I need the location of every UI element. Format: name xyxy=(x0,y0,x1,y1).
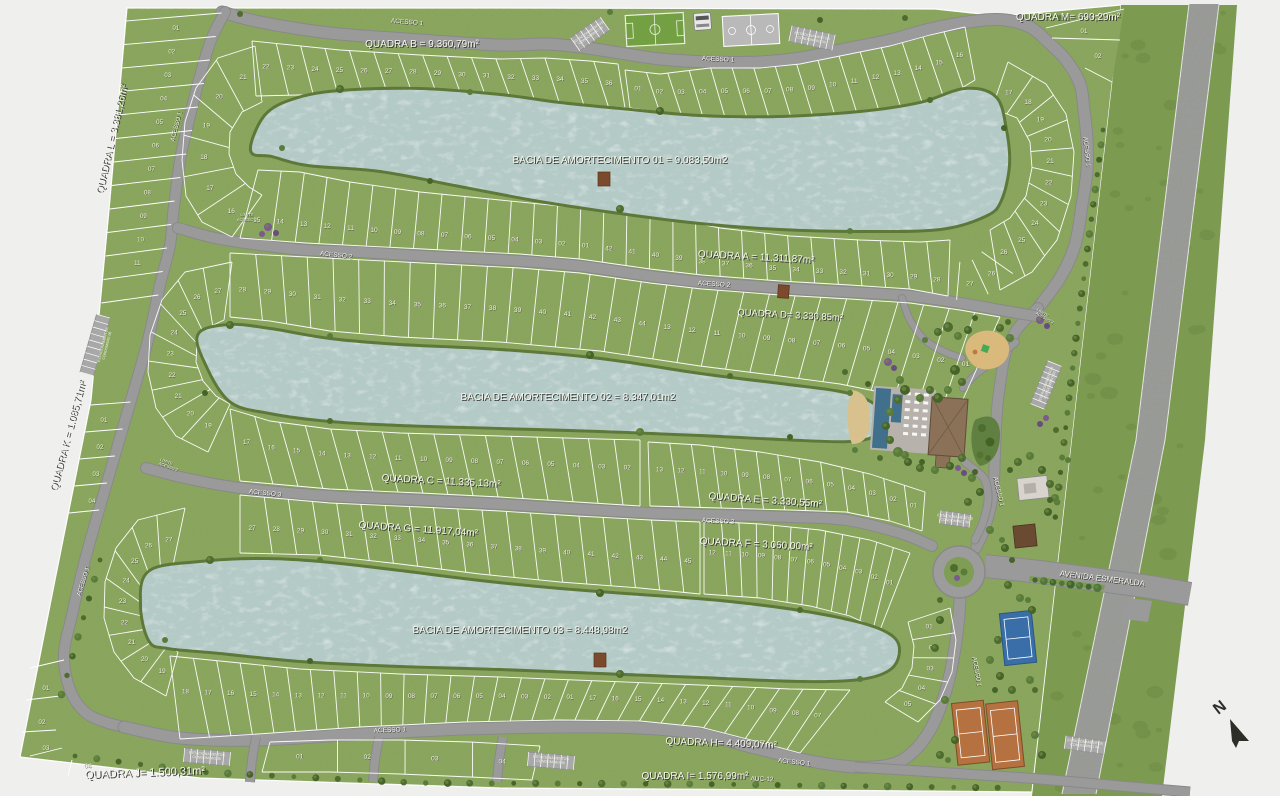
svg-text:26: 26 xyxy=(193,294,201,301)
svg-text:02: 02 xyxy=(890,496,898,503)
svg-text:19: 19 xyxy=(203,122,211,129)
svg-text:06: 06 xyxy=(838,342,846,349)
svg-text:13: 13 xyxy=(656,467,664,474)
svg-text:BACIA DE AMORTECIMENTO 01 = 9.: BACIA DE AMORTECIMENTO 01 = 9.083,50m2 xyxy=(513,155,728,166)
svg-text:22: 22 xyxy=(262,64,270,71)
svg-text:12: 12 xyxy=(872,74,880,81)
svg-text:16: 16 xyxy=(956,52,964,59)
svg-text:09: 09 xyxy=(808,85,816,92)
svg-text:33: 33 xyxy=(532,75,540,82)
svg-text:01: 01 xyxy=(910,502,918,509)
svg-text:08: 08 xyxy=(774,554,782,561)
svg-text:05: 05 xyxy=(863,345,871,352)
svg-text:17: 17 xyxy=(589,695,597,702)
svg-text:12: 12 xyxy=(369,454,377,461)
svg-text:05: 05 xyxy=(156,119,163,126)
svg-text:03: 03 xyxy=(869,490,877,497)
svg-text:24: 24 xyxy=(311,66,319,73)
svg-text:06: 06 xyxy=(453,693,461,700)
svg-text:10: 10 xyxy=(420,456,428,463)
svg-text:02: 02 xyxy=(624,464,632,471)
svg-text:21: 21 xyxy=(1047,158,1055,165)
svg-text:29: 29 xyxy=(910,274,918,281)
svg-text:01: 01 xyxy=(1081,28,1088,35)
svg-text:44: 44 xyxy=(639,321,647,328)
svg-text:26: 26 xyxy=(145,543,153,550)
svg-text:41: 41 xyxy=(629,249,637,256)
svg-text:09: 09 xyxy=(385,693,393,700)
svg-text:07: 07 xyxy=(764,88,772,95)
svg-text:29: 29 xyxy=(434,70,442,77)
svg-text:05: 05 xyxy=(827,482,835,489)
svg-text:21: 21 xyxy=(175,393,183,400)
svg-text:31: 31 xyxy=(483,73,491,80)
svg-text:03: 03 xyxy=(912,353,920,360)
svg-text:08: 08 xyxy=(792,710,800,717)
svg-text:42: 42 xyxy=(589,314,597,321)
svg-text:27: 27 xyxy=(214,288,222,295)
svg-text:01: 01 xyxy=(296,754,304,761)
svg-text:27: 27 xyxy=(385,68,393,75)
svg-text:30: 30 xyxy=(289,291,297,298)
svg-text:12: 12 xyxy=(317,692,325,699)
svg-text:09: 09 xyxy=(140,213,147,220)
svg-text:10: 10 xyxy=(363,693,371,700)
svg-text:34: 34 xyxy=(389,300,397,307)
svg-text:39: 39 xyxy=(514,307,522,314)
svg-text:38: 38 xyxy=(515,546,523,553)
svg-text:04: 04 xyxy=(848,485,856,492)
svg-text:01: 01 xyxy=(172,25,179,32)
svg-text:05: 05 xyxy=(721,88,729,95)
svg-text:32: 32 xyxy=(507,74,515,81)
svg-text:BACIA DE AMORTECIMENTO 03 = 8.: BACIA DE AMORTECIMENTO 03 = 8.448,98m2 xyxy=(413,625,628,636)
svg-text:11: 11 xyxy=(347,225,354,232)
svg-text:02: 02 xyxy=(1095,53,1102,60)
svg-text:32: 32 xyxy=(339,296,347,303)
svg-text:08: 08 xyxy=(763,474,771,481)
svg-text:04: 04 xyxy=(918,685,926,692)
svg-text:07: 07 xyxy=(148,166,155,173)
svg-text:31: 31 xyxy=(863,271,871,278)
svg-text:03: 03 xyxy=(927,666,935,673)
svg-text:40: 40 xyxy=(563,550,571,557)
svg-text:16: 16 xyxy=(228,208,236,215)
svg-text:06: 06 xyxy=(807,558,815,565)
svg-text:BACIA DE AMORTECIMENTO 02 = 8.: BACIA DE AMORTECIMENTO 02 = 8.347,01m2 xyxy=(461,392,676,403)
svg-text:06: 06 xyxy=(464,234,472,241)
svg-text:08: 08 xyxy=(417,230,425,237)
svg-text:11: 11 xyxy=(395,455,402,462)
svg-text:34: 34 xyxy=(418,537,426,544)
svg-text:42: 42 xyxy=(605,246,613,253)
svg-text:24: 24 xyxy=(123,577,131,584)
svg-text:01: 01 xyxy=(582,243,590,250)
svg-text:01: 01 xyxy=(566,694,574,701)
svg-text:05: 05 xyxy=(904,701,912,708)
svg-text:08: 08 xyxy=(408,693,416,700)
svg-text:11: 11 xyxy=(699,469,706,476)
svg-text:06: 06 xyxy=(522,460,530,467)
svg-text:07: 07 xyxy=(784,476,792,483)
svg-text:17: 17 xyxy=(1005,90,1013,97)
svg-text:11: 11 xyxy=(851,78,858,85)
svg-text:13: 13 xyxy=(680,698,688,705)
svg-text:15: 15 xyxy=(936,59,944,66)
svg-text:05: 05 xyxy=(488,235,496,242)
svg-text:02: 02 xyxy=(364,754,372,761)
svg-text:18: 18 xyxy=(182,689,190,696)
svg-text:29: 29 xyxy=(264,288,272,295)
svg-text:31: 31 xyxy=(314,294,322,301)
svg-text:04: 04 xyxy=(699,89,707,96)
svg-text:33: 33 xyxy=(364,298,372,305)
svg-text:22: 22 xyxy=(1045,180,1053,187)
svg-text:09: 09 xyxy=(742,472,750,479)
svg-text:15: 15 xyxy=(250,691,258,698)
svg-text:03: 03 xyxy=(598,463,606,470)
svg-text:19: 19 xyxy=(205,423,213,430)
svg-text:31: 31 xyxy=(345,531,353,538)
svg-text:04: 04 xyxy=(888,349,896,356)
svg-text:16: 16 xyxy=(227,690,235,697)
svg-text:12: 12 xyxy=(677,468,685,475)
svg-text:02: 02 xyxy=(97,444,104,451)
svg-text:41: 41 xyxy=(587,551,595,558)
svg-text:09: 09 xyxy=(394,229,402,236)
svg-text:02: 02 xyxy=(168,49,175,56)
svg-text:03: 03 xyxy=(43,745,50,752)
svg-text:01: 01 xyxy=(43,685,50,692)
svg-text:02: 02 xyxy=(558,241,566,248)
svg-text:10: 10 xyxy=(370,227,378,234)
svg-text:43: 43 xyxy=(636,554,644,561)
svg-text:11: 11 xyxy=(134,260,141,267)
svg-text:34: 34 xyxy=(556,76,564,83)
svg-text:30: 30 xyxy=(458,71,466,78)
svg-text:06: 06 xyxy=(743,88,751,95)
svg-text:35: 35 xyxy=(769,265,777,272)
svg-text:39: 39 xyxy=(539,548,547,555)
svg-text:26: 26 xyxy=(1000,249,1008,256)
svg-text:12: 12 xyxy=(688,327,696,334)
svg-text:01: 01 xyxy=(926,623,934,630)
svg-text:40: 40 xyxy=(652,252,660,259)
svg-text:01: 01 xyxy=(886,580,894,587)
svg-text:11: 11 xyxy=(713,330,720,337)
svg-text:08: 08 xyxy=(786,87,794,94)
svg-text:10: 10 xyxy=(747,705,755,712)
svg-text:06: 06 xyxy=(806,479,814,486)
svg-text:21: 21 xyxy=(128,639,136,646)
svg-text:10: 10 xyxy=(137,237,144,244)
svg-text:13: 13 xyxy=(295,692,303,699)
svg-text:04: 04 xyxy=(511,237,519,244)
svg-text:04: 04 xyxy=(499,693,507,700)
svg-text:04: 04 xyxy=(839,565,847,572)
svg-text:25: 25 xyxy=(1018,237,1026,244)
svg-text:29: 29 xyxy=(297,527,305,534)
svg-text:17: 17 xyxy=(206,185,214,192)
svg-text:15: 15 xyxy=(634,696,642,703)
svg-text:07: 07 xyxy=(813,340,821,347)
svg-text:14: 14 xyxy=(277,219,285,226)
svg-text:01: 01 xyxy=(962,361,970,368)
svg-text:36: 36 xyxy=(466,542,474,549)
svg-text:21: 21 xyxy=(239,74,247,81)
svg-text:28: 28 xyxy=(933,276,941,283)
svg-text:42: 42 xyxy=(612,553,620,560)
svg-text:11: 11 xyxy=(340,693,347,700)
svg-text:07: 07 xyxy=(814,712,822,719)
svg-text:04: 04 xyxy=(499,759,507,766)
svg-text:25: 25 xyxy=(336,67,344,74)
svg-text:35: 35 xyxy=(414,301,422,308)
svg-text:ACESSO 1: ACESSO 1 xyxy=(374,726,407,734)
svg-text:11: 11 xyxy=(725,702,732,709)
svg-text:11: 11 xyxy=(725,550,732,557)
svg-text:20: 20 xyxy=(1044,137,1052,144)
svg-text:07: 07 xyxy=(496,459,504,466)
svg-text:43: 43 xyxy=(614,317,622,324)
svg-text:05: 05 xyxy=(476,693,484,700)
svg-text:08: 08 xyxy=(471,458,479,465)
svg-text:18: 18 xyxy=(200,154,208,161)
svg-text:23: 23 xyxy=(287,65,295,72)
svg-text:QUADRA B = 9.360,79m²: QUADRA B = 9.360,79m² xyxy=(365,39,479,50)
svg-text:14: 14 xyxy=(915,65,923,72)
svg-text:12: 12 xyxy=(323,223,331,230)
svg-text:38: 38 xyxy=(489,305,497,312)
svg-text:ACESSO 2: ACESSO 2 xyxy=(237,217,258,222)
svg-text:09: 09 xyxy=(763,335,771,342)
svg-text:27: 27 xyxy=(249,525,257,532)
svg-text:14: 14 xyxy=(272,692,280,699)
svg-text:09: 09 xyxy=(446,457,454,464)
svg-text:25: 25 xyxy=(179,310,187,317)
svg-text:28: 28 xyxy=(409,69,417,76)
svg-text:17: 17 xyxy=(243,439,251,446)
svg-text:15: 15 xyxy=(293,448,301,455)
svg-text:23: 23 xyxy=(167,351,175,358)
svg-text:03: 03 xyxy=(521,694,529,701)
svg-text:36: 36 xyxy=(605,80,613,87)
svg-text:19: 19 xyxy=(1037,117,1045,124)
svg-text:33: 33 xyxy=(816,268,824,275)
svg-text:35: 35 xyxy=(581,78,589,85)
svg-text:03: 03 xyxy=(678,89,686,96)
svg-text:33: 33 xyxy=(394,535,402,542)
svg-text:22: 22 xyxy=(121,619,129,626)
svg-text:20: 20 xyxy=(216,93,224,100)
svg-text:08: 08 xyxy=(144,190,151,197)
svg-text:14: 14 xyxy=(318,450,326,457)
svg-text:10: 10 xyxy=(720,470,728,477)
svg-text:07: 07 xyxy=(791,556,799,563)
svg-text:35: 35 xyxy=(442,539,450,546)
svg-text:04: 04 xyxy=(573,462,581,469)
svg-text:24: 24 xyxy=(171,330,179,337)
svg-text:10: 10 xyxy=(738,333,746,340)
svg-text:23: 23 xyxy=(1040,200,1048,207)
svg-text:19: 19 xyxy=(159,668,167,675)
svg-text:16: 16 xyxy=(268,444,276,451)
svg-text:36: 36 xyxy=(439,303,447,310)
svg-text:27: 27 xyxy=(165,536,173,543)
svg-text:06: 06 xyxy=(152,143,159,150)
svg-text:12: 12 xyxy=(709,549,717,556)
svg-text:AUC-12: AUC-12 xyxy=(750,776,774,784)
svg-text:QUADRA M= 690,29m²: QUADRA M= 690,29m² xyxy=(1016,12,1121,23)
svg-text:04: 04 xyxy=(160,96,167,103)
svg-text:08: 08 xyxy=(788,338,796,345)
svg-text:37: 37 xyxy=(464,304,472,311)
svg-text:03: 03 xyxy=(164,72,171,79)
svg-text:02: 02 xyxy=(656,88,664,95)
svg-text:34: 34 xyxy=(792,267,800,274)
svg-text:01: 01 xyxy=(634,86,642,93)
svg-text:41: 41 xyxy=(564,311,572,318)
svg-text:17: 17 xyxy=(205,689,213,696)
svg-text:05: 05 xyxy=(547,461,555,468)
svg-text:03: 03 xyxy=(855,569,863,576)
svg-text:03: 03 xyxy=(431,756,439,763)
svg-text:13: 13 xyxy=(344,452,352,459)
svg-text:09: 09 xyxy=(758,553,766,560)
svg-text:45: 45 xyxy=(684,558,692,565)
svg-text:26: 26 xyxy=(988,271,996,278)
svg-text:01: 01 xyxy=(101,417,108,424)
svg-text:10: 10 xyxy=(742,551,750,558)
svg-text:02: 02 xyxy=(544,694,552,701)
svg-text:04: 04 xyxy=(89,498,96,505)
svg-text:30: 30 xyxy=(321,529,329,536)
svg-text:02: 02 xyxy=(871,574,879,581)
svg-text:40: 40 xyxy=(539,309,547,316)
svg-text:25: 25 xyxy=(131,558,139,565)
svg-text:30: 30 xyxy=(887,272,895,279)
svg-text:03: 03 xyxy=(93,471,100,478)
svg-text:23: 23 xyxy=(119,598,127,605)
svg-text:32: 32 xyxy=(839,269,847,276)
svg-text:07: 07 xyxy=(441,232,449,239)
svg-text:02: 02 xyxy=(39,719,46,726)
svg-text:27: 27 xyxy=(966,281,974,288)
svg-text:07: 07 xyxy=(431,693,439,700)
svg-text:16: 16 xyxy=(612,696,620,703)
svg-text:14: 14 xyxy=(657,697,665,704)
svg-text:28: 28 xyxy=(239,287,247,294)
svg-text:22: 22 xyxy=(168,372,176,379)
svg-text:03: 03 xyxy=(535,238,543,245)
svg-text:26: 26 xyxy=(360,68,368,75)
svg-text:13: 13 xyxy=(663,324,671,331)
svg-text:QUADRA I= 1.576,99m²: QUADRA I= 1.576,99m² xyxy=(642,771,750,782)
svg-text:39: 39 xyxy=(675,255,683,262)
svg-text:32: 32 xyxy=(370,533,378,540)
svg-text:05: 05 xyxy=(823,562,831,569)
svg-text:12: 12 xyxy=(702,700,710,707)
svg-text:28: 28 xyxy=(273,526,281,533)
svg-text:02: 02 xyxy=(937,357,945,364)
svg-text:10: 10 xyxy=(829,82,837,89)
svg-text:20: 20 xyxy=(141,656,149,663)
svg-text:20: 20 xyxy=(187,411,195,418)
svg-text:18: 18 xyxy=(1024,99,1032,106)
svg-text:37: 37 xyxy=(491,544,499,551)
svg-text:09: 09 xyxy=(770,707,778,714)
svg-text:44: 44 xyxy=(660,556,668,563)
svg-text:13: 13 xyxy=(893,70,901,77)
svg-text:24: 24 xyxy=(1031,220,1039,227)
svg-text:13: 13 xyxy=(300,221,308,228)
